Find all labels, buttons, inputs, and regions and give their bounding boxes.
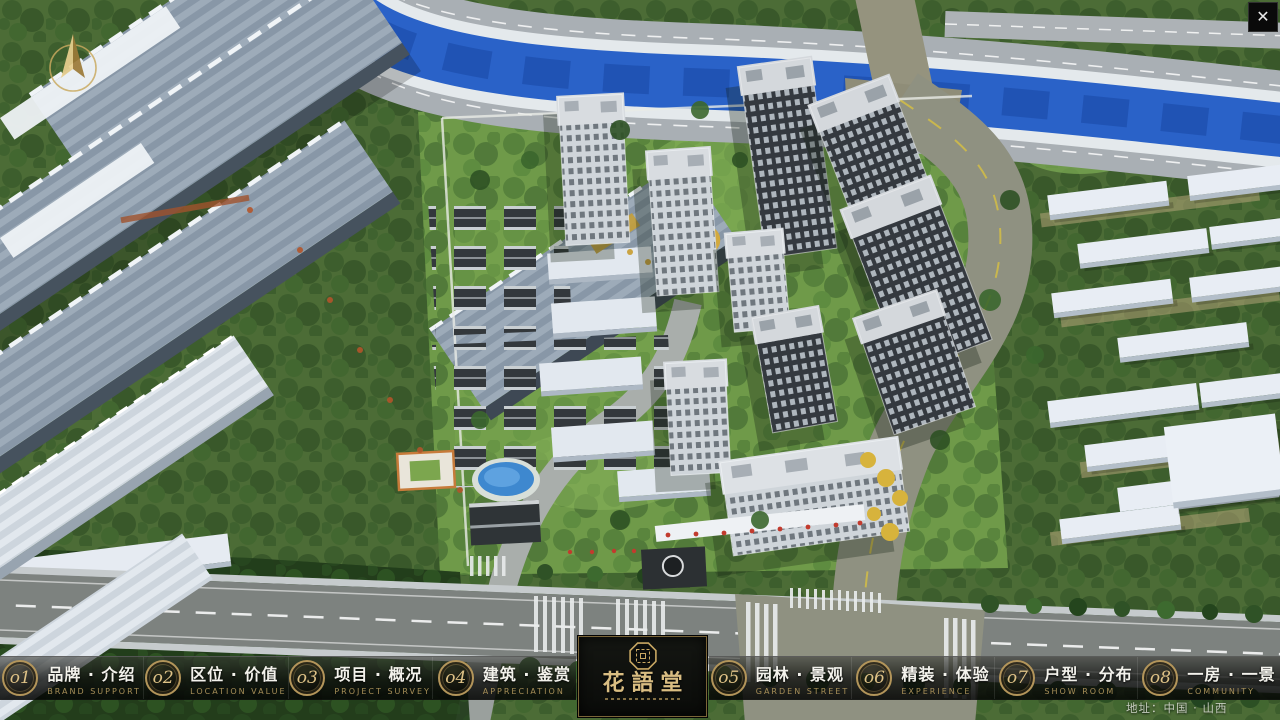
nav-item-label-en: APPRECIATION xyxy=(483,687,571,696)
project-logo-panel: 花語堂 xyxy=(578,636,707,717)
nav-item-number-badge: o6 xyxy=(856,660,892,696)
nav-item-label-en: LOCATION VALUE xyxy=(190,687,286,696)
nav-item-number-badge: o8 xyxy=(1142,660,1178,696)
nav-item-room-view[interactable]: o8 一房 · 一景 COMMUNITY xyxy=(1137,657,1280,699)
nav-item-number-badge: o2 xyxy=(145,660,181,696)
nav-item-label-zh: 户型 · 分布 xyxy=(1044,661,1132,685)
nav-item-label-en: PROJECT SURVEY xyxy=(334,687,431,696)
presentation-window: ✕ o1 品牌 · 介绍 BRAND SUPPORT o2 区位 · 价值 LO… xyxy=(0,0,1280,720)
nav-item-brand-intro[interactable]: o1 品牌 · 介绍 BRAND SUPPORT xyxy=(0,657,143,699)
nav-item-label-zh: 精装 · 体验 xyxy=(901,661,989,685)
navbar-left-strip: o1 品牌 · 介绍 BRAND SUPPORT o2 区位 · 价值 LOCA… xyxy=(0,656,576,700)
nav-item-number-badge: o1 xyxy=(2,660,38,696)
nav-item-location-value[interactable]: o2 区位 · 价值 LOCATION VALUE xyxy=(143,657,287,699)
nav-item-label-zh: 项目 · 概况 xyxy=(334,661,431,685)
nav-item-label-zh: 区位 · 价值 xyxy=(190,661,286,685)
nav-item-project-survey[interactable]: o3 项目 · 概况 PROJECT SURVEY xyxy=(288,657,432,699)
entry-intersection xyxy=(735,588,985,720)
nav-item-label-en: BRAND SUPPORT xyxy=(47,687,141,696)
top-road xyxy=(945,24,1280,36)
nav-item-number-badge: o7 xyxy=(999,660,1035,696)
nav-item-floorplan-distribution[interactable]: o7 户型 · 分布 SHOW ROOM xyxy=(994,657,1137,699)
project-address: 地址：中国 · 山西 xyxy=(1126,700,1227,716)
nav-item-number-badge: o4 xyxy=(438,660,474,696)
nav-item-number-badge: o5 xyxy=(711,660,747,696)
nav-item-label-zh: 园林 · 景观 xyxy=(756,661,850,685)
nav-item-label-en: COMMUNITY xyxy=(1187,687,1275,696)
close-icon: ✕ xyxy=(1256,7,1269,26)
nav-item-label-zh: 建筑 · 鉴赏 xyxy=(483,661,571,685)
nav-item-label-zh: 一房 · 一景 xyxy=(1187,661,1275,685)
compass-icon xyxy=(40,28,106,100)
nav-item-label-zh: 品牌 · 介绍 xyxy=(47,661,141,685)
nav-item-number-badge: o3 xyxy=(289,660,325,696)
project-logo-title: 花語堂 xyxy=(595,671,689,695)
nav-item-label-en: SHOW ROOM xyxy=(1044,687,1132,696)
nav-item-garden-landscape[interactable]: o5 园林 · 景观 GARDEN STREET xyxy=(709,657,851,699)
nav-item-architecture[interactable]: o4 建筑 · 鉴赏 APPRECIATION xyxy=(432,657,576,699)
project-emblem-icon xyxy=(628,641,658,671)
nav-item-label-en: EXPERIENCE xyxy=(901,687,989,696)
project-logo-subtitle-line xyxy=(605,698,681,700)
nav-item-interior-experience[interactable]: o6 精装 · 体验 EXPERIENCE xyxy=(851,657,994,699)
close-button[interactable]: ✕ xyxy=(1248,2,1278,32)
aerial-map-canvas[interactable] xyxy=(0,0,1280,720)
nav-item-label-en: GARDEN STREET xyxy=(756,687,850,696)
navbar-right-strip: o5 园林 · 景观 GARDEN STREET o6 精装 · 体验 EXPE… xyxy=(709,656,1280,700)
